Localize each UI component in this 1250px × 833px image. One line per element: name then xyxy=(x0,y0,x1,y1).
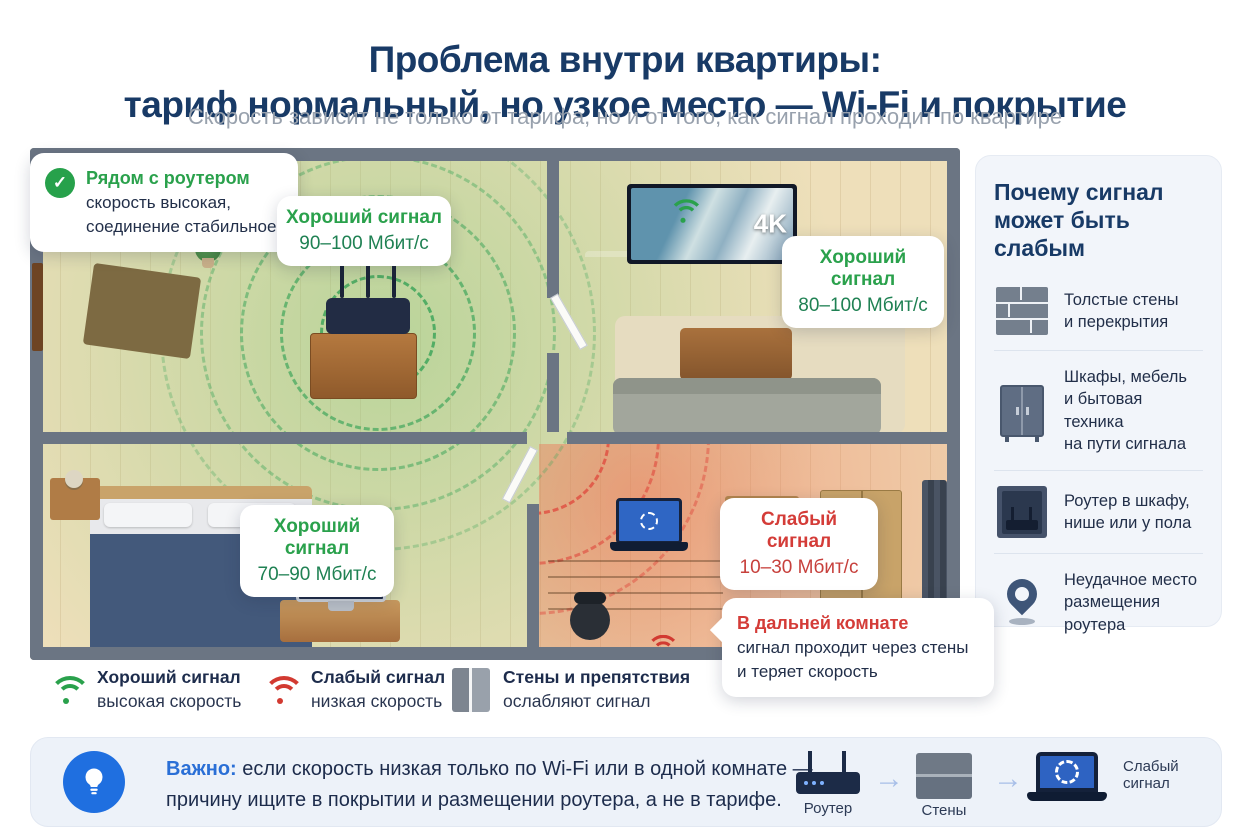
wall-living-top xyxy=(547,161,559,298)
wifi-good-icon xyxy=(668,199,699,223)
check-icon xyxy=(45,168,75,198)
router-antenna xyxy=(340,264,344,298)
flow-label-weak-signal: Слабый сигнал xyxy=(1123,758,1213,792)
router-antenna xyxy=(366,264,370,298)
arrow-right-icon: → xyxy=(874,762,904,796)
laptop-icon xyxy=(1036,752,1098,792)
sidebar-item-thick-walls: Толстые стены и перекрытия xyxy=(994,272,1203,350)
callout-signal-bedroom: Хороший сигнал 70–90 Мбит/с xyxy=(240,505,394,597)
office-chair xyxy=(570,600,610,640)
important-label: Важно: xyxy=(166,758,237,780)
tv-4k-badge: 4K xyxy=(754,209,787,240)
page-subtitle: Скорость зависит не только от тарифа, но… xyxy=(0,104,1250,130)
door-mat xyxy=(83,263,201,359)
brick-wall-icon xyxy=(994,287,1050,335)
sidebar-why-weak: Почему сигнал может быть слабым Толстые … xyxy=(975,155,1222,627)
important-note-text: Важно: если скорость низкая только по Wi… xyxy=(166,754,813,816)
callout-far-room-note: В дальней комнате сигнал проходит через … xyxy=(722,598,994,697)
callout-title: Рядом с роутером xyxy=(86,168,250,188)
loading-spinner-icon xyxy=(1055,760,1079,784)
wall-living-bottom xyxy=(547,353,559,432)
wall-icon xyxy=(452,668,490,712)
pillow xyxy=(104,503,192,527)
important-note-banner: Важно: если скорость низкая только по Wi… xyxy=(30,737,1222,827)
location-pin-icon xyxy=(994,577,1050,629)
sidebar-title: Почему сигнал может быть слабым xyxy=(994,178,1203,262)
entry-door xyxy=(32,263,43,351)
router xyxy=(326,298,410,334)
wall-divider-h-right xyxy=(567,432,947,444)
far-room-desk xyxy=(548,546,723,612)
laptop xyxy=(616,498,682,544)
sidebar-item-furniture: Шкафы, мебель и бытовая техника на пути … xyxy=(994,350,1203,470)
router-antenna xyxy=(392,264,396,298)
wall-bedroom-far xyxy=(527,504,539,647)
router-in-niche-icon xyxy=(994,486,1050,538)
coffee-table xyxy=(680,328,792,380)
arrow-right-icon: → xyxy=(993,762,1023,796)
lamp xyxy=(65,470,83,488)
router-icon xyxy=(796,772,860,794)
wall-icon xyxy=(916,753,972,799)
legend-weak-signal: Слабый сигнал низкая скорость xyxy=(262,666,445,713)
flow-label-router: Роутер xyxy=(788,800,868,817)
tv: 4K xyxy=(627,184,797,264)
sidebar-item-router-in-closet: Роутер в шкафу, нише или у пола xyxy=(994,470,1203,553)
nightstand xyxy=(50,478,100,520)
legend-good-signal: Хороший сигнал высокая скорость xyxy=(48,666,241,713)
callout-near-router: Рядом с роутером скорость высокая, соеди… xyxy=(30,153,298,252)
legend-walls: Стены и препятствия ослабляют сигнал xyxy=(452,666,690,713)
lightbulb-icon xyxy=(63,751,125,813)
sidebar-item-bad-placement: Неудачное место размещения роутера xyxy=(994,553,1203,651)
wall-divider-h-left xyxy=(43,432,527,444)
wifi-weak-icon xyxy=(262,676,298,704)
wifi-good-icon xyxy=(48,676,84,704)
flow-label-walls: Стены xyxy=(904,802,984,819)
callout-body: скорость высокая, соединение стабильное xyxy=(86,193,276,236)
loading-spinner-icon xyxy=(640,512,658,530)
callout-signal-living: Хороший сигнал 80–100 Мбит/с xyxy=(782,236,944,328)
wardrobe-icon xyxy=(994,385,1050,437)
callout-signal-far: Слабый сигнал 10–30 Мбит/с xyxy=(720,498,878,590)
wall-outer-right xyxy=(947,148,960,660)
laptop-keyboard xyxy=(610,542,688,551)
sofa xyxy=(613,378,881,435)
tv-screen: 4K xyxy=(631,188,793,260)
router-cabinet xyxy=(310,333,417,399)
laptop-base xyxy=(1027,792,1107,801)
callout-signal-center: Хороший сигнал 90–100 Мбит/с xyxy=(277,196,451,266)
